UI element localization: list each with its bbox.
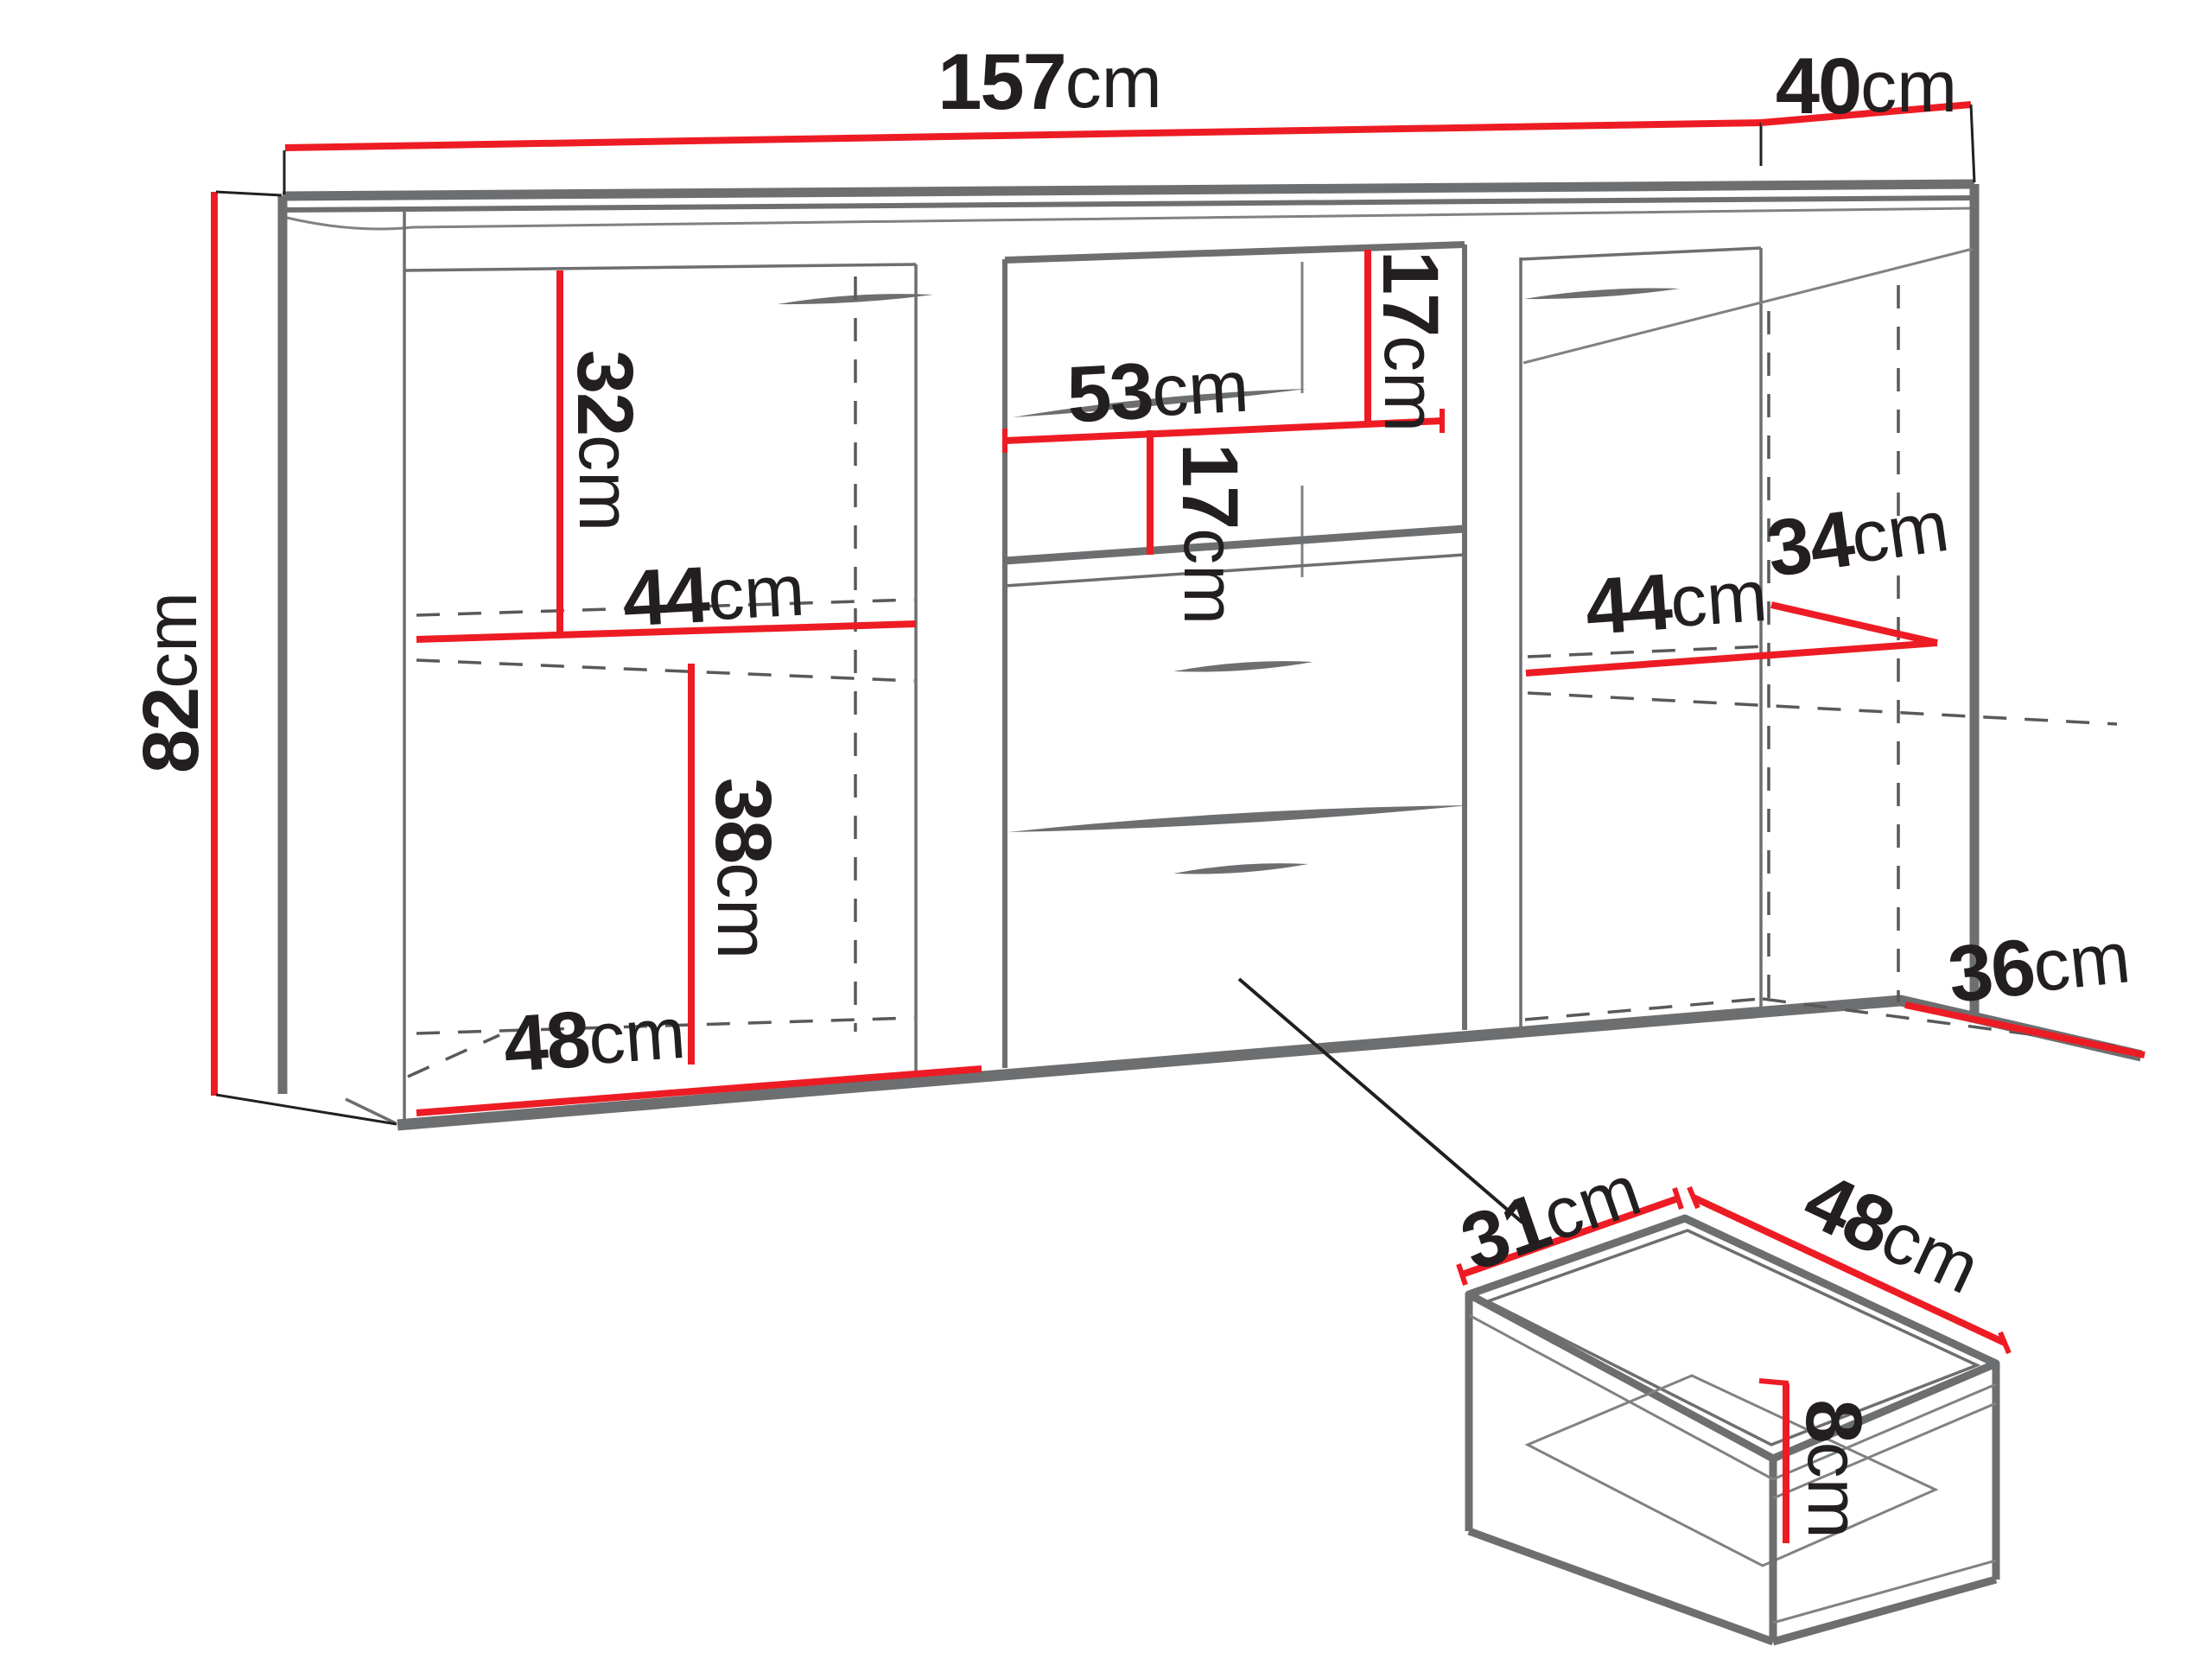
dim-31-tick-right xyxy=(1675,1188,1681,1209)
dim-31-tick-left xyxy=(1459,1264,1465,1285)
left-lower-height-label: 38cm xyxy=(699,778,787,959)
depth-label: 40cm xyxy=(1776,42,1957,130)
drawer-bottom-right-edge xyxy=(1773,1580,1996,1642)
left-door-section xyxy=(404,207,933,1123)
right-door-top-edge xyxy=(1521,248,1761,259)
dim-depth-right-extension xyxy=(1971,105,1974,182)
dim-8-top-tick xyxy=(1759,1381,1789,1383)
left-shelf-width-label: 44cm xyxy=(620,546,806,644)
right-depth-mid-label: 34cm xyxy=(1762,481,1954,594)
right-ceiling-perspective-line xyxy=(1523,249,1973,363)
top-front-edge xyxy=(283,184,1974,196)
dim-48-left-line xyxy=(416,1069,982,1113)
right-depth-bottom-label: 36cm xyxy=(1944,912,2134,1019)
center-lower-gap-label: 17cm xyxy=(1166,443,1254,625)
left-upper-height-label: 32cm xyxy=(561,350,649,531)
left-shelf-under-dashed-line xyxy=(416,660,914,681)
furniture-dimension-diagram: 157cm 40cm 82cm 32cm 44cm 38cm 48cm 53cm… xyxy=(0,0,2212,1659)
left-door-top-edge xyxy=(404,264,916,270)
width-label: 157cm xyxy=(938,38,1161,126)
center-upper-gap-label: 17cm xyxy=(1366,251,1454,432)
drawer-detail-leader-line xyxy=(1239,979,1522,1223)
right-door-bottom-edge xyxy=(1521,1013,1761,1033)
dim-34-line xyxy=(1771,605,1937,643)
left-floor-corner-dashed-line xyxy=(408,1035,499,1077)
top-panel-underside-line xyxy=(287,208,1973,229)
diagram-page: 157cm 40cm 82cm 32cm 44cm 38cm 48cm 53cm… xyxy=(0,0,2212,1659)
right-shelf-dashed-line-lower xyxy=(1528,693,2117,724)
right-width-label: 44cm xyxy=(1583,551,1770,652)
height-label: 82cm xyxy=(127,592,215,773)
drawer2-handle-icon xyxy=(1173,863,1308,874)
dim-width-line xyxy=(285,123,1761,148)
drawer-divider-gap xyxy=(1008,805,1469,832)
drawer1-handle-icon xyxy=(1173,661,1313,671)
drawer-height-label: 8cm xyxy=(1789,1399,1878,1538)
right-door-handle-icon xyxy=(1524,289,1680,300)
dim-height-top-extension xyxy=(216,192,282,195)
left-bottom-width-label: 48cm xyxy=(501,988,689,1089)
center-shelf-width-label: 53cm xyxy=(1065,342,1250,440)
top-panel-lower-edge xyxy=(283,198,1974,210)
dim-36-line xyxy=(1905,1005,2145,1055)
